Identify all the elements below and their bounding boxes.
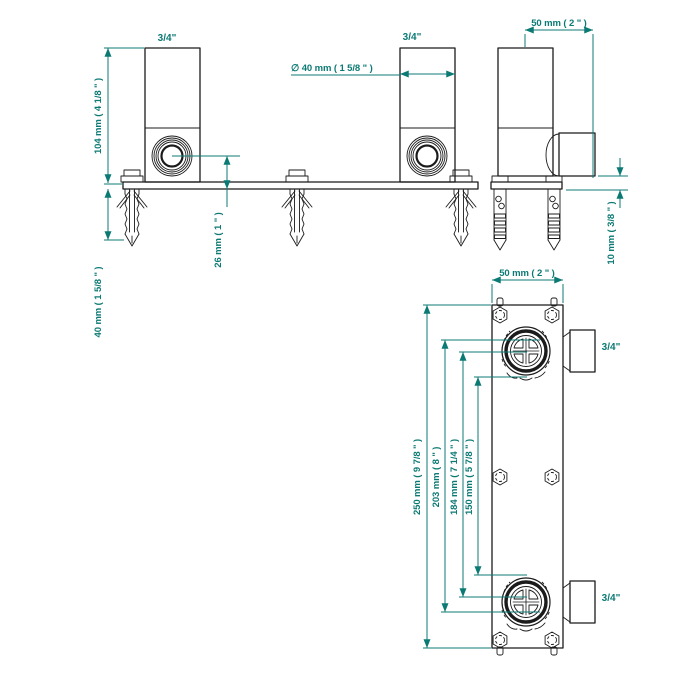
technical-drawing-page: 3/4" 3/4" 104 mm ( 4 1/8 " ) 40 mm ( 1 5… (0, 0, 700, 700)
rough-in-valve-drawing: 3/4" 3/4" 104 mm ( 4 1/8 " ) 40 mm ( 1 5… (0, 0, 700, 700)
svg-text:203 mm ( 8 " ): 203 mm ( 8 " ) (431, 447, 442, 508)
svg-text:184 mm ( 7 1/4 " ): 184 mm ( 7 1/4 " ) (449, 439, 460, 515)
port-size-label-left: 3/4" (158, 33, 177, 44)
svg-text:∅ 40 mm ( 1 5/8 " ): ∅ 40 mm ( 1 5/8 " ) (291, 63, 373, 74)
svg-text:50 mm ( 2 " ): 50 mm ( 2 " ) (531, 18, 586, 29)
svg-text:250 mm ( 9 7/8 " ): 250 mm ( 9 7/8 " ) (412, 439, 423, 515)
svg-text:150 mm ( 5 7/8 " ): 150 mm ( 5 7/8 " ) (464, 439, 475, 515)
port-size-label-bottom: 3/4" (602, 593, 621, 604)
port-size-label-top: 3/4" (602, 342, 621, 353)
port-size-label-right: 3/4" (403, 32, 422, 43)
svg-text:10 mm ( 3/8 " ): 10 mm ( 3/8 " ) (606, 201, 617, 264)
svg-text:40 mm ( 1 5/8 " ): 40 mm ( 1 5/8 " ) (93, 267, 104, 338)
svg-text:50 mm ( 2 " ): 50 mm ( 2 " ) (499, 268, 554, 279)
svg-text:26 mm ( 1 " ): 26 mm ( 1 " ) (213, 212, 224, 267)
svg-text:104 mm ( 4 1/8 " ): 104 mm ( 4 1/8 " ) (93, 78, 104, 154)
